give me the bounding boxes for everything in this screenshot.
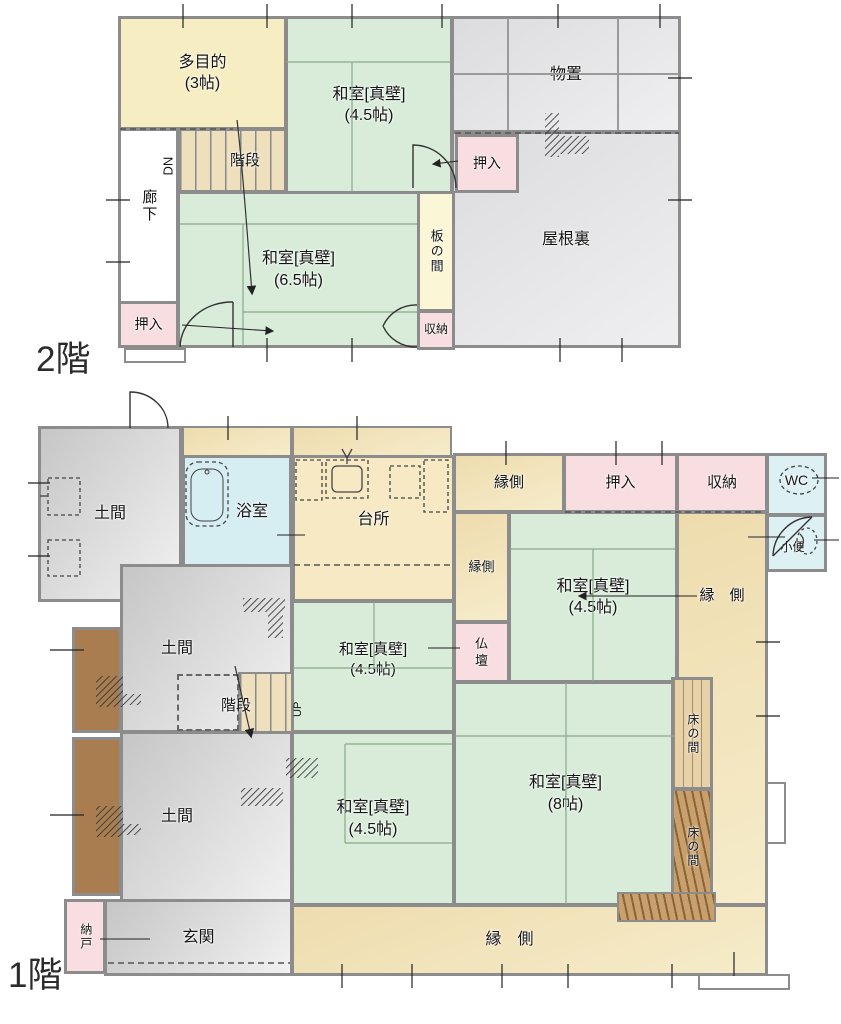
wood-deck	[617, 892, 716, 922]
floor2-label: 2階	[36, 331, 90, 382]
room-label: 浴室	[236, 501, 268, 522]
bay-window	[766, 782, 786, 844]
room-label: 床の間	[684, 713, 700, 755]
room-label: 玄関	[182, 927, 214, 948]
room-label: 物置	[550, 64, 582, 85]
room-label: 台所	[357, 509, 389, 530]
room-f1-wc: WC	[766, 453, 827, 516]
room-label: 土間	[161, 806, 193, 827]
room-label: 板の間	[427, 229, 444, 274]
room-label: 縁側	[468, 558, 494, 575]
room-f2-oshiire-top: 押入	[455, 134, 519, 193]
porch-strip-bath	[182, 426, 292, 458]
room-label: 和室[真壁] (4.5帖)	[339, 640, 407, 680]
room-label: 縁側	[494, 473, 524, 493]
room-f1-tokonoma-lower: 床の間	[671, 788, 713, 906]
room-f2-storage-monooki: 物置	[451, 16, 681, 133]
room-f1-washitsu-4_5-sw: 和室[真壁] (4.5帖)	[291, 731, 455, 906]
room-f1-engawa-top: 縁側	[453, 453, 565, 513]
room-f1-kitchen: 台所	[292, 455, 455, 602]
floor1-label: 1階	[8, 947, 62, 998]
room-f1-doma-bottom: 土間	[120, 731, 293, 902]
room-f2-washitsu-4_5: 和室[真壁] (4.5帖)	[285, 16, 453, 194]
room-label: 土間	[161, 638, 193, 659]
room-f2-oshiire-left: 押入	[118, 301, 179, 348]
room-f2-shuunou: 収納	[417, 310, 455, 350]
room-f1-washitsu-4_5-mid: 和室[真壁] (4.5帖)	[291, 600, 455, 733]
room-label: 押入	[605, 473, 635, 493]
room-f1-washitsu-8: 和室[真壁] (8帖)	[453, 681, 678, 906]
room-label: 縁 側	[485, 929, 533, 950]
room-label: 屋根裏	[542, 229, 590, 250]
room-label: 納戸	[77, 923, 93, 951]
room-label: 収納	[424, 322, 448, 338]
room-label: 床の間	[684, 826, 700, 868]
room-label: 収納	[707, 473, 737, 493]
room-f1-nando: 納戸	[64, 899, 106, 974]
door-arc	[130, 392, 168, 428]
room-label: 和室[真壁] (4.5帖)	[333, 84, 406, 126]
room-f1-oshiire: 押入	[563, 453, 678, 513]
room-label: 縁 側	[699, 586, 744, 606]
wood-porch-strip-2	[72, 737, 122, 896]
room-f1-bathroom: 浴室	[182, 455, 292, 568]
room-f2-washitsu-6_5: 和室[真壁] (6.5帖)	[177, 191, 420, 348]
floorplan-canvas: 多目的 (3帖) 廊下 階段 和室[真壁] (4.5帖) 物置 屋根裏 押入 和…	[0, 0, 841, 1024]
room-label: 押入	[135, 315, 163, 333]
room-f2-stairs: 階段	[177, 128, 287, 193]
room-label: 土間	[94, 503, 126, 524]
room-f1-engawa-small: 縁側	[453, 511, 510, 623]
room-f2-multipurpose: 多目的 (3帖)	[118, 16, 287, 130]
room-f1-tokonoma-upper: 床の間	[671, 677, 713, 790]
room-f1-genkan: 玄関	[104, 899, 293, 976]
room-f2-itanoma: 板の間	[417, 191, 455, 312]
room-label: 和室[真壁] (8帖)	[529, 772, 602, 814]
room-label: 多目的 (3帖)	[178, 52, 226, 94]
room-label: 和室[真壁] (4.5帖)	[557, 576, 630, 618]
room-label: 和室[真壁] (6.5帖)	[262, 248, 335, 290]
room-label: 廊下	[139, 189, 159, 223]
wood-porch-strip-1	[72, 627, 122, 733]
stairs-f1-label: 階段	[205, 696, 267, 716]
room-label: 押入	[473, 154, 501, 172]
stairs-dn-label: DN	[161, 140, 176, 176]
room-f1-washitsu-4_5-ne: 和室[真壁] (4.5帖)	[508, 511, 678, 683]
window-sill-f2	[124, 348, 186, 363]
stairs-up-label: UP	[292, 687, 304, 717]
room-label: WC	[785, 471, 808, 489]
entry-step	[698, 974, 790, 990]
room-f1-urinal: 小便	[766, 514, 827, 572]
room-label: 階段	[230, 151, 260, 171]
room-label: 小便	[780, 540, 804, 556]
room-label: 仏 壇	[475, 635, 488, 669]
porch-strip-kitchen	[292, 426, 452, 458]
room-f1-butsudan: 仏 壇	[453, 621, 510, 683]
room-f1-shuunou: 収納	[676, 453, 768, 513]
room-label: 和室[真壁] (4.5帖)	[337, 797, 410, 839]
